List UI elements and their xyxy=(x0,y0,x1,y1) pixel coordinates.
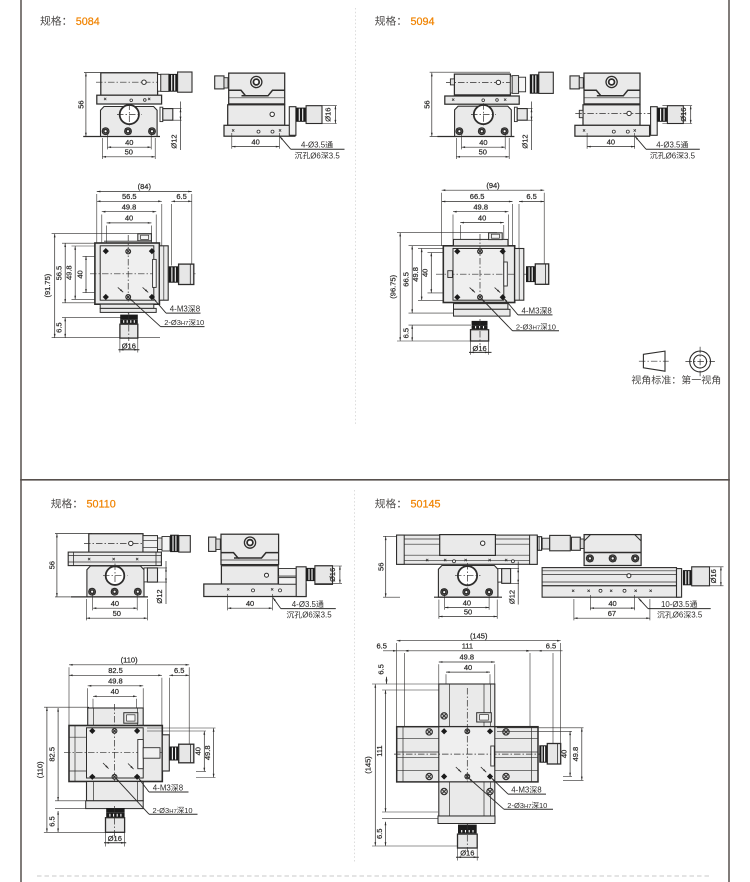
svg-text:5084: 5084 xyxy=(76,16,100,28)
svg-text:40: 40 xyxy=(464,663,472,672)
svg-text:2-Ø3: 2-Ø3 xyxy=(164,318,181,327)
svg-text:3.5: 3.5 xyxy=(321,611,333,620)
svg-text:4-M3: 4-M3 xyxy=(511,786,530,795)
svg-text:Ø6: Ø6 xyxy=(673,611,684,620)
svg-text:40: 40 xyxy=(560,750,569,758)
svg-text:3.5: 3.5 xyxy=(329,151,341,160)
svg-text:10: 10 xyxy=(539,801,547,810)
svg-text:6.5: 6.5 xyxy=(55,322,64,332)
svg-text:Ø6: Ø6 xyxy=(302,611,313,620)
svg-text:50145: 50145 xyxy=(411,499,441,511)
svg-text:2-Ø3: 2-Ø3 xyxy=(507,801,524,810)
svg-text:4-M3: 4-M3 xyxy=(522,307,541,316)
svg-text:56.5: 56.5 xyxy=(55,266,64,281)
svg-text:2-Ø3: 2-Ø3 xyxy=(516,322,533,331)
svg-text:40: 40 xyxy=(246,599,254,608)
svg-text:H7: H7 xyxy=(533,325,541,331)
svg-text:Ø6: Ø6 xyxy=(310,151,321,160)
svg-text:Ø12: Ø12 xyxy=(521,134,530,148)
svg-text:56: 56 xyxy=(377,563,386,571)
svg-text:49.8: 49.8 xyxy=(65,265,74,280)
svg-text:4-M3: 4-M3 xyxy=(153,784,172,793)
svg-text:H7: H7 xyxy=(169,809,177,815)
svg-text:111: 111 xyxy=(375,745,384,756)
svg-text:40: 40 xyxy=(478,213,486,222)
svg-text:50: 50 xyxy=(113,609,121,618)
svg-text:40: 40 xyxy=(111,687,119,696)
svg-text:5094: 5094 xyxy=(411,16,435,28)
svg-text:2-Ø3: 2-Ø3 xyxy=(153,806,170,815)
svg-text:Ø12: Ø12 xyxy=(155,589,164,603)
svg-text:82.5: 82.5 xyxy=(48,747,57,762)
svg-text:Ø16: Ø16 xyxy=(108,834,122,843)
svg-text:8: 8 xyxy=(537,786,542,795)
svg-text:6.5: 6.5 xyxy=(376,664,385,674)
svg-text:6.5: 6.5 xyxy=(174,666,184,675)
svg-text:Ø12: Ø12 xyxy=(507,590,516,604)
svg-text:8: 8 xyxy=(196,305,201,314)
svg-text:49.8: 49.8 xyxy=(122,202,137,211)
svg-text:6.5: 6.5 xyxy=(176,192,186,201)
svg-text:49.8: 49.8 xyxy=(571,747,580,762)
svg-text:40: 40 xyxy=(75,270,84,278)
svg-text:67: 67 xyxy=(608,609,616,618)
svg-text:Ø16: Ø16 xyxy=(328,568,337,582)
svg-text:56: 56 xyxy=(48,561,57,569)
svg-text:40: 40 xyxy=(194,747,203,755)
svg-text:Ø16: Ø16 xyxy=(122,341,136,350)
svg-text:82.5: 82.5 xyxy=(108,666,123,675)
svg-text:49.8: 49.8 xyxy=(108,677,123,686)
svg-text:6.5: 6.5 xyxy=(48,816,57,826)
svg-text:Ø16: Ø16 xyxy=(324,108,333,122)
svg-text:Ø6: Ø6 xyxy=(666,151,677,160)
svg-text:66.5: 66.5 xyxy=(402,272,411,287)
svg-text:Ø16: Ø16 xyxy=(709,569,718,583)
svg-text:H7: H7 xyxy=(524,804,532,810)
svg-text:66.5: 66.5 xyxy=(470,192,485,201)
svg-text:4-Ø3.5: 4-Ø3.5 xyxy=(656,141,681,150)
svg-text:4-M3: 4-M3 xyxy=(170,305,189,314)
svg-text:50: 50 xyxy=(125,148,133,157)
svg-text:(145): (145) xyxy=(364,756,373,774)
svg-text:40: 40 xyxy=(608,599,616,608)
svg-text:10: 10 xyxy=(548,322,556,331)
svg-text:10-Ø3.5: 10-Ø3.5 xyxy=(661,600,690,609)
svg-text:10: 10 xyxy=(196,318,204,327)
svg-text:40: 40 xyxy=(111,599,119,608)
svg-text:56: 56 xyxy=(77,100,86,108)
svg-text:40: 40 xyxy=(421,269,430,277)
svg-text:4-Ø3.5: 4-Ø3.5 xyxy=(292,600,317,609)
svg-text:(91.75): (91.75) xyxy=(43,273,52,297)
svg-text:8: 8 xyxy=(547,307,552,316)
svg-text:40: 40 xyxy=(479,138,487,147)
svg-text:6.5: 6.5 xyxy=(526,192,536,201)
svg-text:50: 50 xyxy=(479,148,487,157)
svg-text:Ø16: Ø16 xyxy=(679,108,688,122)
svg-text:49.8: 49.8 xyxy=(459,653,474,662)
svg-text:50110: 50110 xyxy=(87,499,116,511)
svg-text:(94): (94) xyxy=(486,181,500,190)
svg-text:6.5: 6.5 xyxy=(375,829,384,839)
svg-text:H7: H7 xyxy=(181,321,189,327)
svg-text:56.5: 56.5 xyxy=(122,192,137,201)
svg-text:6.5: 6.5 xyxy=(376,642,386,651)
svg-text:(84): (84) xyxy=(138,182,152,191)
svg-text:56: 56 xyxy=(423,100,432,108)
svg-text:111: 111 xyxy=(462,642,473,651)
svg-text:50: 50 xyxy=(464,607,472,616)
svg-text:40: 40 xyxy=(251,137,259,146)
svg-text:Ø12: Ø12 xyxy=(170,134,179,148)
svg-text:10: 10 xyxy=(184,806,192,815)
svg-text:6.5: 6.5 xyxy=(546,642,556,651)
svg-text:40: 40 xyxy=(125,138,133,147)
svg-text:8: 8 xyxy=(179,784,184,793)
svg-text:4-Ø3.5: 4-Ø3.5 xyxy=(301,141,326,150)
svg-text:(110): (110) xyxy=(121,656,138,665)
svg-text:49.8: 49.8 xyxy=(203,745,212,760)
svg-text:40: 40 xyxy=(607,137,615,146)
svg-text:3.5: 3.5 xyxy=(691,611,703,620)
svg-text:3.5: 3.5 xyxy=(684,151,696,160)
svg-text:(145): (145) xyxy=(470,631,488,640)
svg-text:Ø16: Ø16 xyxy=(473,344,487,353)
svg-text:Ø16: Ø16 xyxy=(460,848,474,857)
svg-text:40: 40 xyxy=(125,214,133,223)
svg-text:(96.75): (96.75) xyxy=(389,274,398,298)
svg-text:49.8: 49.8 xyxy=(411,267,420,282)
svg-text:6.5: 6.5 xyxy=(402,328,411,338)
svg-text:49.8: 49.8 xyxy=(473,202,488,211)
svg-text:40: 40 xyxy=(463,598,471,607)
svg-text:(110): (110) xyxy=(35,761,44,778)
